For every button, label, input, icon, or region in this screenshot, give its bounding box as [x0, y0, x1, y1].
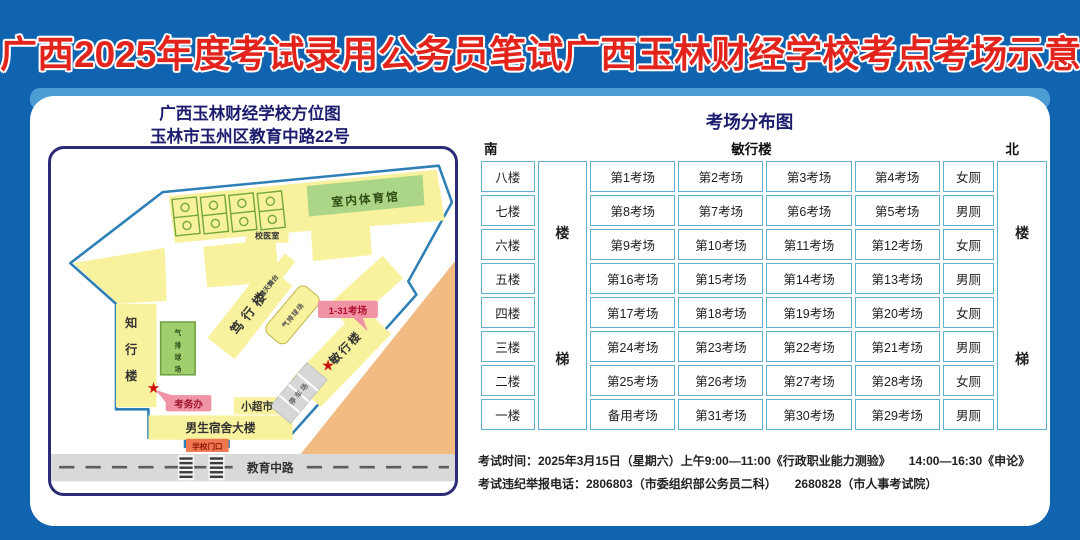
footer-notes: 考试时间：2025年3月15日（星期六）上午9:00—11:00《行政职业能力测…	[478, 450, 1038, 496]
road: 教育中路	[51, 454, 455, 481]
exam-room-cell: 第27考场	[766, 365, 851, 396]
zebra-crossing-icon	[208, 455, 224, 480]
stair-char: 楼	[1000, 223, 1044, 243]
rooms-range-label: 1-31考场	[329, 305, 368, 317]
exam-room-cell: 第29考场	[855, 399, 940, 430]
exam-room-cell: 第19考场	[766, 297, 851, 328]
stair-char: 梯	[1000, 349, 1044, 369]
floor-label: 一楼	[481, 399, 535, 430]
exam-room-cell: 第4考场	[855, 161, 940, 192]
floor-label: 六楼	[481, 229, 535, 260]
zebra-crossing-icon	[178, 455, 194, 480]
exam-room-cell: 第23考场	[678, 331, 763, 362]
campus-map-svg: 教育中路	[51, 149, 455, 493]
exam-room-cell: 第17考场	[590, 297, 675, 328]
stairwell-right-chars: 楼梯	[1000, 170, 1044, 422]
campus-map: 教育中路	[48, 146, 458, 496]
floor-label: 二楼	[481, 365, 535, 396]
table-row: 八楼楼梯第1考场第2考场第3考场第4考场女厕楼梯	[481, 161, 1047, 192]
exam-room-cell: 备用考场	[590, 399, 675, 430]
toilet-cell: 男厕	[943, 331, 995, 362]
stair-char: 梯	[541, 349, 585, 369]
exam-room-cell: 第24考场	[590, 331, 675, 362]
exam-office-label: 考务办	[174, 398, 203, 410]
exam-room-cell: 第31考场	[678, 399, 763, 430]
exam-room-cell: 第2考场	[678, 161, 763, 192]
road-label: 教育中路	[246, 461, 294, 475]
exam-room-cell: 第14考场	[766, 263, 851, 294]
floor-label: 八楼	[481, 161, 535, 192]
exam-room-cell: 第11考场	[766, 229, 851, 260]
floor-label: 四楼	[481, 297, 535, 328]
exam-room-cell: 第20考场	[855, 297, 940, 328]
content-panel: 广西玉林财经学校方位图 玉林市玉州区教育中路22号 教育中路	[30, 96, 1050, 526]
exam-room-cell: 第28考场	[855, 365, 940, 396]
exam-room-cell: 第10考场	[678, 229, 763, 260]
direction-south: 南	[478, 138, 498, 158]
exam-room-table-wrap: 八楼楼梯第1考场第2考场第3考场第4考场女厕楼梯七楼第8考场第7考场第6考场第5…	[478, 158, 1050, 433]
floor-label: 七楼	[481, 195, 535, 226]
exam-time-line: 考试时间：2025年3月15日（星期六）上午9:00—11:00《行政职业能力测…	[478, 450, 1038, 473]
exam-room-cell: 第13考场	[855, 263, 940, 294]
stair-char: 楼	[541, 223, 585, 243]
exam-room-cell: 第7考场	[678, 195, 763, 226]
building-top-label: 敏行楼	[498, 138, 1006, 158]
stairwell-left: 楼梯	[538, 161, 588, 430]
zhixing-building-label: 知行楼	[124, 315, 138, 383]
exam-room-cell: 第16考场	[590, 263, 675, 294]
floor-label: 五楼	[481, 263, 535, 294]
direction-north: 北	[1006, 138, 1022, 158]
toilet-cell: 女厕	[943, 365, 995, 396]
male-dorm-label: 男生宿舍大楼	[186, 421, 256, 435]
clinic-label: 校医室	[255, 230, 279, 240]
map-title-line1: 广西玉林财经学校方位图	[50, 103, 450, 126]
exam-room-cell: 第30考场	[766, 399, 851, 430]
mini-market-label: 小超市	[240, 400, 273, 413]
page-title: 广西2025年度考试录用公务员笔试广西玉林财经学校考点考场示意图	[0, 24, 1080, 78]
exam-room-cell: 第12考场	[855, 229, 940, 260]
stairwell-left-chars: 楼梯	[541, 170, 585, 422]
report-phone-line: 考试违纪举报电话：2806803（市委组织部公务员二科） 2680828（市人事…	[478, 473, 1038, 496]
exam-site-star-icon: ★	[321, 358, 335, 375]
exam-room-cell: 第18考场	[678, 297, 763, 328]
school-gate-label: 学校门口	[192, 441, 222, 451]
exam-room-table: 八楼楼梯第1考场第2考场第3考场第4考场女厕楼梯七楼第8考场第7考场第6考场第5…	[478, 158, 1050, 433]
exam-room-cell: 第25考场	[590, 365, 675, 396]
exam-room-cell: 第1考场	[590, 161, 675, 192]
exam-room-cell: 第22考场	[766, 331, 851, 362]
exam-site-star-icon: ★	[147, 380, 161, 397]
toilet-cell: 女厕	[943, 161, 995, 192]
exam-room-cell: 第6考场	[766, 195, 851, 226]
toilet-cell: 男厕	[943, 399, 995, 430]
stairwell-right: 楼梯	[997, 161, 1047, 430]
exam-room-cell: 第26考场	[678, 365, 763, 396]
floor-label: 三楼	[481, 331, 535, 362]
exam-room-cell: 第15考场	[678, 263, 763, 294]
exam-room-cell: 第5考场	[855, 195, 940, 226]
direction-row: 南 敏行楼 北	[478, 138, 1021, 158]
toilet-cell: 女厕	[943, 229, 995, 260]
toilet-cell: 男厕	[943, 195, 995, 226]
school-gate: 学校门口	[186, 439, 229, 452]
exam-room-cell: 第3考场	[766, 161, 851, 192]
exam-room-table-body: 八楼楼梯第1考场第2考场第3考场第4考场女厕楼梯七楼第8考场第7考场第6考场第5…	[481, 161, 1047, 430]
distribution-title: 考场分布图	[478, 109, 1021, 134]
exam-room-cell: 第8考场	[590, 195, 675, 226]
toilet-cell: 女厕	[943, 297, 995, 328]
volleyball-court: 气排球场	[161, 322, 196, 375]
exam-room-cell: 第21考场	[855, 331, 940, 362]
toilet-cell: 男厕	[943, 263, 995, 294]
exam-room-cell: 第9考场	[590, 229, 675, 260]
map-title: 广西玉林财经学校方位图 玉林市玉州区教育中路22号	[50, 103, 450, 149]
